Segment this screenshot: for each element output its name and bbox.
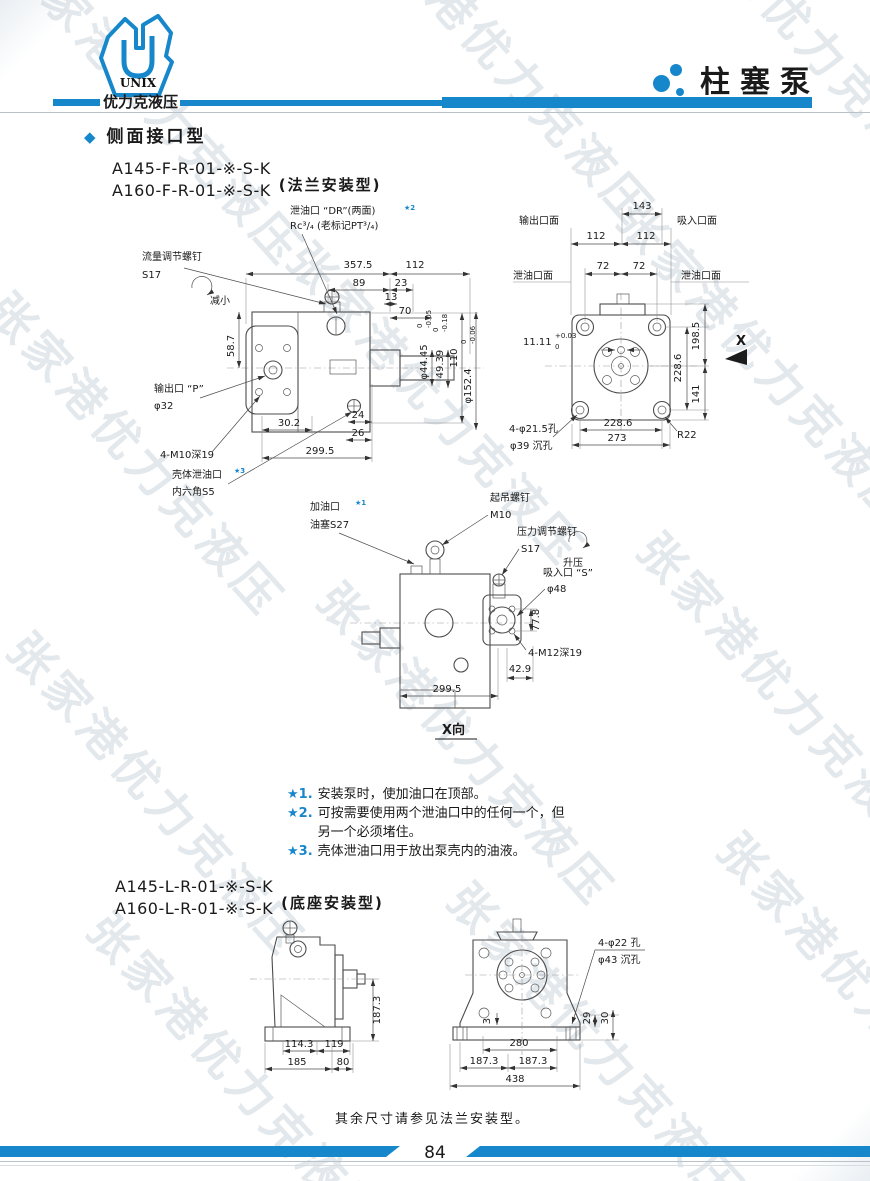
model-code: A160-F-R-01-※-S-K [112,180,271,202]
diamond-bullet-icon: ◆ [84,128,99,146]
note-3: ★3. 壳体泄油口用于放出泵壳内的油液。 [287,842,632,861]
case-drain-hex: 内六角S5 [172,485,215,498]
dim-11-11: 11.11 [523,337,552,348]
dim-77-8: 77.8 [531,609,542,631]
note-2-text: 可按需要使用两个泄油口中的任何一个，但 另一个必须堵住。 [318,804,565,842]
lifting-screw-label: 起吊螺钉 [490,492,530,504]
drain-face-label-left: 泄油口面 [513,269,553,282]
pressure-screw-label: 压力调节螺钉 [517,525,577,538]
dim-357-5: 357.5 [344,260,373,271]
mount-type-label: (底座安装型) [281,884,384,913]
brand-bar-right [180,100,442,106]
dim-dia-44-45-tol-bot: -0.05 [425,310,433,328]
counterbore-label: φ43 沉孔 [598,953,641,966]
dim-89: 89 [353,278,366,289]
flow-screw-label: 流量调节螺钉 [142,250,202,263]
dim-280: 280 [509,1038,528,1049]
dimension-lines [400,609,537,700]
lifting-screw-size: M10 [490,510,511,521]
decrease-label: 减小 [210,295,230,307]
dim-23: 23 [395,278,408,289]
note-2: ★2. 可按需要使用两个泄油口中的任何一个，但 另一个必须堵住。 [287,804,632,842]
case-drain-note-mark: ★3 [234,467,245,475]
dim-13: 13 [385,292,398,303]
flange-model-block: A145-F-R-01-※-S-K A160-F-R-01-※-S-K (法兰安… [112,158,381,202]
fill-plug-label: 油塞S27 [310,518,349,531]
note-1-text: 安装泵时，使加油口在顶部。 [318,785,487,804]
counterbore-label: φ39 沉孔 [510,439,553,452]
drain-port-note-mark: ★2 [404,204,415,212]
case-drain-label: 壳体泄油口 [172,468,222,481]
flange-front-view-drawing: X 输出口面 吸入口面 泄油口面 泄油口面 143 112 112 72 72 … [505,198,795,473]
watermark-text: 张家港优力克液压 [704,816,870,1169]
mount-holes-label: 4-φ21.5孔 [509,423,558,435]
dim-70: 70 [399,306,412,317]
dim-42-9: 42.9 [509,664,531,675]
watermark-text: 张家港优力克液压 [624,516,870,869]
suction-face-label: 吸入口面 [677,216,717,227]
drain-port-label: 泄油口 “DR”(两面) [290,204,375,217]
footer-bar-left [0,1146,400,1157]
dim-49-39-tol-top: 0 [432,328,440,332]
outlet-face-label: 输出口面 [519,214,559,227]
dim-299-5: 299.5 [306,446,335,457]
dim-119: 119 [324,1039,343,1050]
dim-187-3-left: 187.3 [470,1056,499,1067]
x-direction-view-drawing: 加油口 ★1 油塞S27 起吊螺钉 M10 压力调节螺钉 S17 升压 吸入口 … [295,488,615,744]
model-code: A145-F-R-01-※-S-K [112,158,271,180]
drain-face-label-right: 泄油口面 [681,269,721,282]
pressure-screw-size: S17 [521,544,540,555]
dim-dia-152-4: φ152.4 [463,368,474,403]
pump-outline [453,919,580,1055]
pump-outline [350,541,540,708]
fill-port-note-mark: ★1 [355,499,366,507]
catalog-page: 张家港优力克液压 张家港优力克液压 张家港优力克液压 张家港优力克液压 张家港优… [0,0,870,1181]
dim-72-right: 72 [633,261,646,272]
dim-80: 80 [337,1057,350,1068]
base-side-view-drawing: 187.3 114.3 119 185 80 [235,915,390,1080]
mount-holes-label: 4-φ22 孔 [598,937,640,949]
model-code: A145-L-R-01-※-S-K [115,876,273,898]
view-direction-arrow [725,349,747,365]
page-title: 柱塞泵 [700,57,820,101]
dim-112-left: 112 [586,231,605,242]
footer-rule-light [0,1165,870,1166]
page-number: 84 [408,1143,462,1163]
dim-r22: R22 [677,430,697,441]
reference-note: 其余尺寸请参见法兰安装型。 [335,1108,530,1127]
base-front-view-drawing: 4-φ22 孔 φ43 沉孔 3 29 30 280 187.3 187.3 4… [445,905,695,1105]
dim-49-39: 49.39 [435,350,446,379]
pump-outline [250,921,375,1041]
brand-bar-left [53,99,100,106]
dim-228-6-horizontal: 228.6 [604,418,633,429]
suction-port-size: φ48 [547,584,566,595]
dim-112-right: 112 [636,231,655,242]
dim-438: 438 [505,1074,524,1085]
mount-type-label: (法兰安装型) [279,166,382,195]
dim-273: 273 [607,433,626,444]
dim-29: 29 [582,1012,593,1025]
dim-187-3: 187.3 [372,996,383,1025]
dim-299-5: 299.5 [433,684,462,695]
dimension-lines [513,208,749,449]
tap-holes-label: 4-M12深19 [528,647,582,659]
dimension-lines [265,979,379,1073]
dim-141: 141 [691,384,702,403]
dim-26: 26 [352,428,365,439]
drain-thread-label: Rc³/₄ (老标记PT³/₄) [290,219,378,232]
footnotes-block: ★1. 安装泵时，使加油口在顶部。 ★2. 可按需要使用两个泄油口中的任何一个，… [287,785,632,861]
flange-side-view-drawing: 泄油口 “DR”(两面) ★2 Rc³/₄ (老标记PT³/₄) 流量调节螺钉 … [132,200,504,512]
dim-dia-44-45: φ44.45 [419,344,430,379]
outlet-port-label: 输出口 “P” [154,382,204,395]
fill-port-label: 加油口 [310,500,340,513]
dim-11-11-tol-top: +0.03 [555,332,576,340]
dim-dia-44-45-tol-top: 0 [416,324,424,328]
flow-screw-size: S17 [142,270,161,281]
dim-72-left: 72 [597,261,610,272]
base-model-block: A145-L-R-01-※-S-K A160-L-R-01-※-S-K (底座安… [115,876,384,920]
dim-187-3-right: 187.3 [519,1056,548,1067]
header-rule [0,112,870,113]
dim-3: 3 [482,1018,493,1024]
dim-24: 24 [352,410,365,421]
brand-dot-small [676,88,684,96]
brand-dot-medium [670,64,682,76]
unix-logo: UNIX [88,6,188,98]
note-1-mark: ★1. [287,785,313,804]
brand-name: 优力克液压 [103,91,178,112]
footer-rule [0,1161,870,1162]
tap-holes-label: 4-M10深19 [160,449,214,461]
view-direction-letter: X [736,334,746,349]
section-title: ◆侧面接口型 [84,122,207,147]
note-2-mark: ★2. [287,804,313,842]
dim-58-7: 58.7 [226,335,237,357]
dim-112: 112 [405,260,424,271]
outlet-port-size: φ32 [154,401,173,412]
logo-text: UNIX [120,76,157,90]
note-3-mark: ★3. [287,842,313,861]
dim-30: 30 [600,1012,611,1025]
section-title-label: 侧面接口型 [107,127,207,147]
footer-bar-right [466,1146,870,1157]
view-label: X向 [442,722,465,738]
dim-114-3: 114.3 [285,1039,314,1050]
dim-dia-152-4-tol-bot: -0.06 [469,325,477,344]
dim-185: 185 [287,1057,306,1068]
note-1: ★1. 安装泵时，使加油口在顶部。 [287,785,632,804]
dim-110: 110 [449,348,460,367]
brand-dot-large [653,75,670,92]
dim-30-2: 30.2 [278,418,300,429]
suction-port-label: 吸入口 “S” [543,568,593,579]
dim-49-39-tol-bot: -0.18 [441,314,449,332]
dim-228-6-vertical: 228.6 [673,354,684,383]
dim-198-5: 198.5 [691,322,702,351]
dim-143: 143 [632,201,651,212]
dimension-lines [450,950,645,1090]
dim-dia-152-4-tol-top: 0 [460,340,468,344]
note-3-text: 壳体泄油口用于放出泵壳内的油液。 [318,842,526,861]
dim-11-11-tol-bot: 0 [555,343,559,351]
